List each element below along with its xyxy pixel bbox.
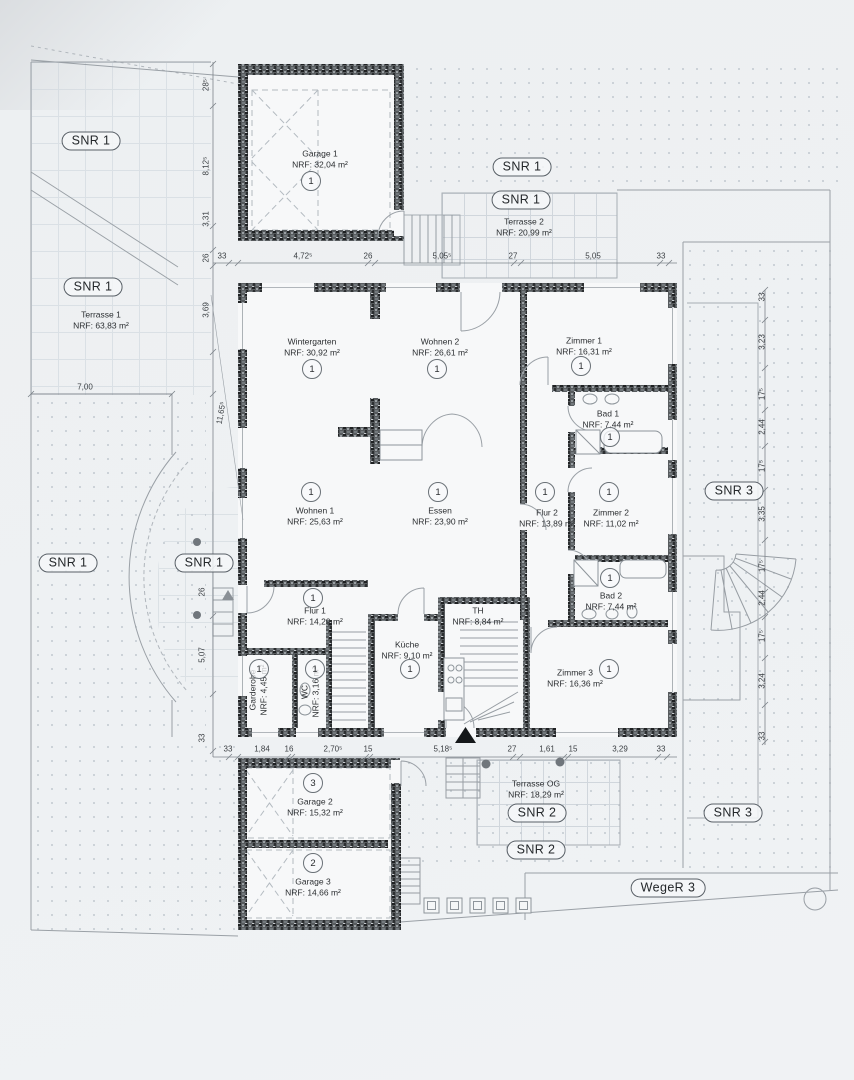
unit-circle: 1	[301, 171, 321, 191]
zone-label-snr1: SNR 1	[39, 554, 98, 573]
zone-label-weger3: WegeR 3	[631, 879, 706, 898]
floor-plan: SNR 1 SNR 1 SNR 1 SNR 1 SNR 1 SNR 1 SNR …	[0, 0, 854, 1080]
unit-circle: 1	[571, 356, 591, 376]
dim-label: 2,44	[758, 590, 767, 606]
unit-circle: 3	[303, 773, 323, 793]
dim-label: 7,00	[77, 383, 93, 392]
unit-circle: 1	[600, 568, 620, 588]
dim-label: 27	[509, 252, 518, 261]
unit-circle: 1	[428, 482, 448, 502]
room-label-wintergarten: WintergartenNRF: 30,92 m²	[284, 337, 340, 358]
unit-circle: 1	[599, 659, 619, 679]
zone-label-snr3: SNR 3	[704, 804, 763, 823]
zone-label-snr3: SNR 3	[705, 482, 764, 501]
room-label-flur-1: Flur 1NRF: 14,29 m²	[287, 606, 343, 627]
zone-label-snr1: SNR 1	[493, 158, 552, 177]
dim-label: 4,72⁵	[294, 252, 313, 261]
zone-label-snr1: SNR 1	[492, 191, 551, 210]
dim-label: 5,18⁵	[434, 745, 453, 754]
room-label-terrasse-2: Terrasse 2NRF: 20,99 m²	[496, 217, 552, 238]
zone-label-snr1: SNR 1	[64, 278, 123, 297]
dim-label: 26	[202, 254, 211, 263]
dim-label: 17⁵	[758, 388, 767, 400]
dim-label: 8,12⁵	[202, 157, 211, 176]
dim-label: 33	[198, 734, 207, 743]
plan-drawing-svg	[0, 0, 854, 1080]
room-label-flur-2: Flur 2NRF: 13,89 m²	[519, 508, 575, 529]
dim-label: 3,31	[202, 211, 211, 227]
room-label-garage-3: Garage 3NRF: 14,66 m²	[285, 877, 341, 898]
room-label-zimmer-2: Zimmer 2NRF: 11,02 m²	[583, 508, 638, 529]
dim-label: 3,35	[758, 506, 767, 522]
unit-circle: 1	[305, 659, 325, 679]
unit-circle: 2	[303, 853, 323, 873]
dim-label: 17⁵	[758, 560, 767, 572]
unit-circle: 1	[535, 482, 555, 502]
dim-label: 2,44	[758, 419, 767, 435]
unit-circle: 1	[301, 482, 321, 502]
room-label-zimmer-3: Zimmer 3NRF: 16,36 m²	[547, 668, 603, 689]
room-label-bad-2: Bad 2NRF: 7,44 m²	[585, 591, 636, 612]
dim-label: 3,29	[612, 745, 628, 754]
dim-label: 5,05	[585, 252, 601, 261]
unit-circle: 1	[302, 359, 322, 379]
unit-circle: 1	[400, 659, 420, 679]
dim-label: 15	[364, 745, 373, 754]
dim-label: 1,61	[539, 745, 555, 754]
dim-label: 17⁵	[758, 630, 767, 642]
dim-label: 26	[364, 252, 373, 261]
dim-label: 26	[198, 588, 207, 597]
unit-circle: 1	[599, 482, 619, 502]
dim-label: 17⁵	[758, 460, 767, 472]
dim-label: 3,24	[758, 673, 767, 689]
dim-label: 33	[657, 745, 666, 754]
unit-circle: 1	[249, 659, 269, 679]
room-label-zimmer-1: Zimmer 1NRF: 16,31 m²	[556, 336, 612, 357]
room-label-wohnen-1: Wohnen 1NRF: 25,63 m²	[287, 506, 343, 527]
room-label-terrasse-1: Terrasse 1NRF: 63,83 m²	[73, 310, 129, 331]
room-label-terrasse-og: Terrasse OGNRF: 18,29 m²	[508, 779, 564, 800]
dim-label: 27	[508, 745, 517, 754]
room-label-essen: EssenNRF: 23,90 m²	[412, 506, 468, 527]
dim-label: 5,05⁵	[433, 252, 452, 261]
unit-circle: 1	[303, 588, 323, 608]
room-label-kueche: KücheNRF: 9,10 m²	[381, 640, 432, 661]
zone-label-snr2: SNR 2	[508, 804, 567, 823]
unit-circle: 1	[427, 359, 447, 379]
dim-label: 5,07	[198, 647, 207, 663]
dim-label: 33	[758, 732, 767, 741]
dim-label: 33	[758, 293, 767, 302]
dim-label: 16	[285, 745, 294, 754]
dim-label: 33	[224, 745, 233, 754]
garage-markings	[246, 90, 390, 918]
unit-circle: 1	[600, 427, 620, 447]
dim-label: 33	[657, 252, 666, 261]
room-label-garage-2: Garage 2NRF: 15,32 m²	[287, 797, 343, 818]
dim-label: 3,69	[202, 302, 211, 318]
zone-label-snr1: SNR 1	[175, 554, 234, 573]
dim-label: 3,23	[758, 334, 767, 350]
dim-label: 33	[218, 252, 227, 261]
room-label-garage-1: Garage 1NRF: 32,04 m²	[292, 149, 348, 170]
dim-label: 1,84	[254, 745, 270, 754]
zone-label-snr1: SNR 1	[62, 132, 121, 151]
room-label-wohnen-2: Wohnen 2NRF: 26,61 m²	[412, 337, 468, 358]
dim-label: 28⁵	[202, 79, 211, 91]
zone-label-snr2: SNR 2	[507, 841, 566, 860]
dim-label: 15	[569, 745, 578, 754]
planters	[424, 898, 531, 913]
room-label-th: THNRF: 8,84 m²	[452, 606, 503, 627]
dim-label: 2,70⁵	[324, 745, 343, 754]
